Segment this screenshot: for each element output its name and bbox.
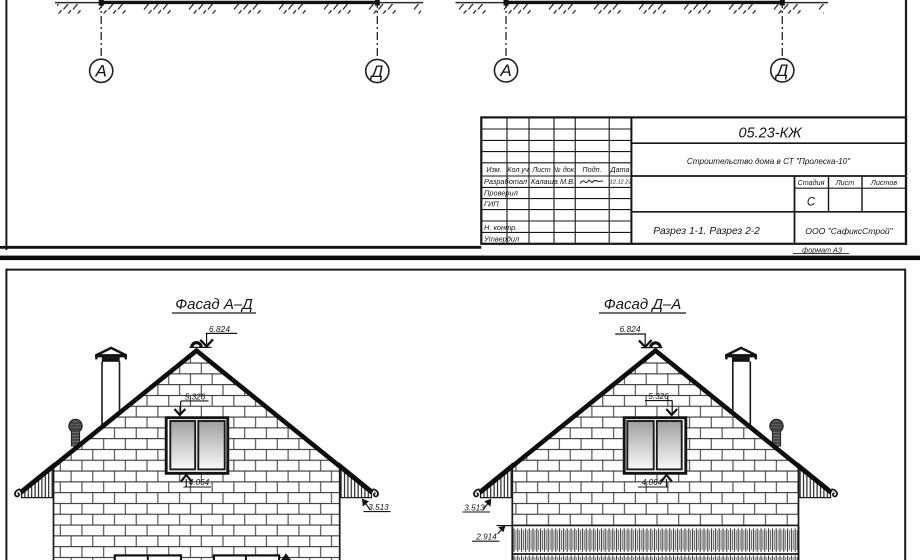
svg-text:ООО "СафиксСтрой": ООО "СафиксСтрой": [805, 226, 893, 236]
svg-text:Проверил: Проверил: [484, 188, 519, 197]
svg-text:Н. контр.: Н. контр.: [484, 223, 517, 232]
svg-text:4.064: 4.064: [642, 478, 663, 487]
svg-text:Фасад А–Д: Фасад А–Д: [175, 296, 253, 313]
svg-text:2.914: 2.914: [475, 533, 497, 542]
svg-text:Разработал: Разработал: [484, 177, 528, 186]
svg-text:Листов: Листов: [870, 178, 897, 187]
svg-text:ГИП: ГИП: [484, 200, 499, 209]
svg-text:Строительство дома в СТ "Проле: Строительство дома в СТ "Пролеска-10": [687, 157, 851, 166]
svg-text:3.513: 3.513: [368, 503, 389, 512]
svg-text:Лист: Лист: [835, 178, 855, 187]
svg-text:формат А3: формат А3: [802, 245, 842, 254]
svg-text:Стадия: Стадия: [798, 178, 825, 187]
svg-text:6.824: 6.824: [620, 324, 641, 334]
svg-text:4.064: 4.064: [189, 478, 210, 487]
svg-text:Фасад Д–А: Фасад Д–А: [604, 296, 681, 313]
svg-text:Лист: Лист: [531, 165, 551, 174]
svg-text:Изм.: Изм.: [486, 165, 501, 174]
svg-text:5.326: 5.326: [648, 392, 669, 401]
svg-text:5.326: 5.326: [185, 392, 206, 401]
svg-text:Д: Д: [774, 61, 788, 80]
svg-text:А: А: [95, 62, 107, 81]
svg-text:С: С: [807, 197, 816, 209]
svg-text:05.23-КЖ: 05.23-КЖ: [739, 126, 803, 142]
svg-text:Дата: Дата: [610, 165, 630, 174]
svg-text:3.513: 3.513: [464, 504, 485, 513]
svg-text:Калаша М.В.: Калаша М.В.: [531, 177, 575, 186]
svg-text:Разрез 1-1. Разрез 2-2: Разрез 1-1. Разрез 2-2: [653, 226, 760, 237]
svg-text:№ док.: № док.: [553, 165, 576, 174]
svg-text:Д: Д: [369, 62, 383, 81]
svg-text:Утвердил: Утвердил: [483, 234, 520, 243]
svg-text:12.12.23: 12.12.23: [610, 180, 632, 186]
svg-text:А: А: [499, 61, 511, 80]
svg-text:Подп.: Подп.: [582, 165, 601, 174]
svg-text:Кол.уч: Кол.уч: [507, 165, 529, 174]
svg-text:6.824: 6.824: [209, 324, 230, 334]
